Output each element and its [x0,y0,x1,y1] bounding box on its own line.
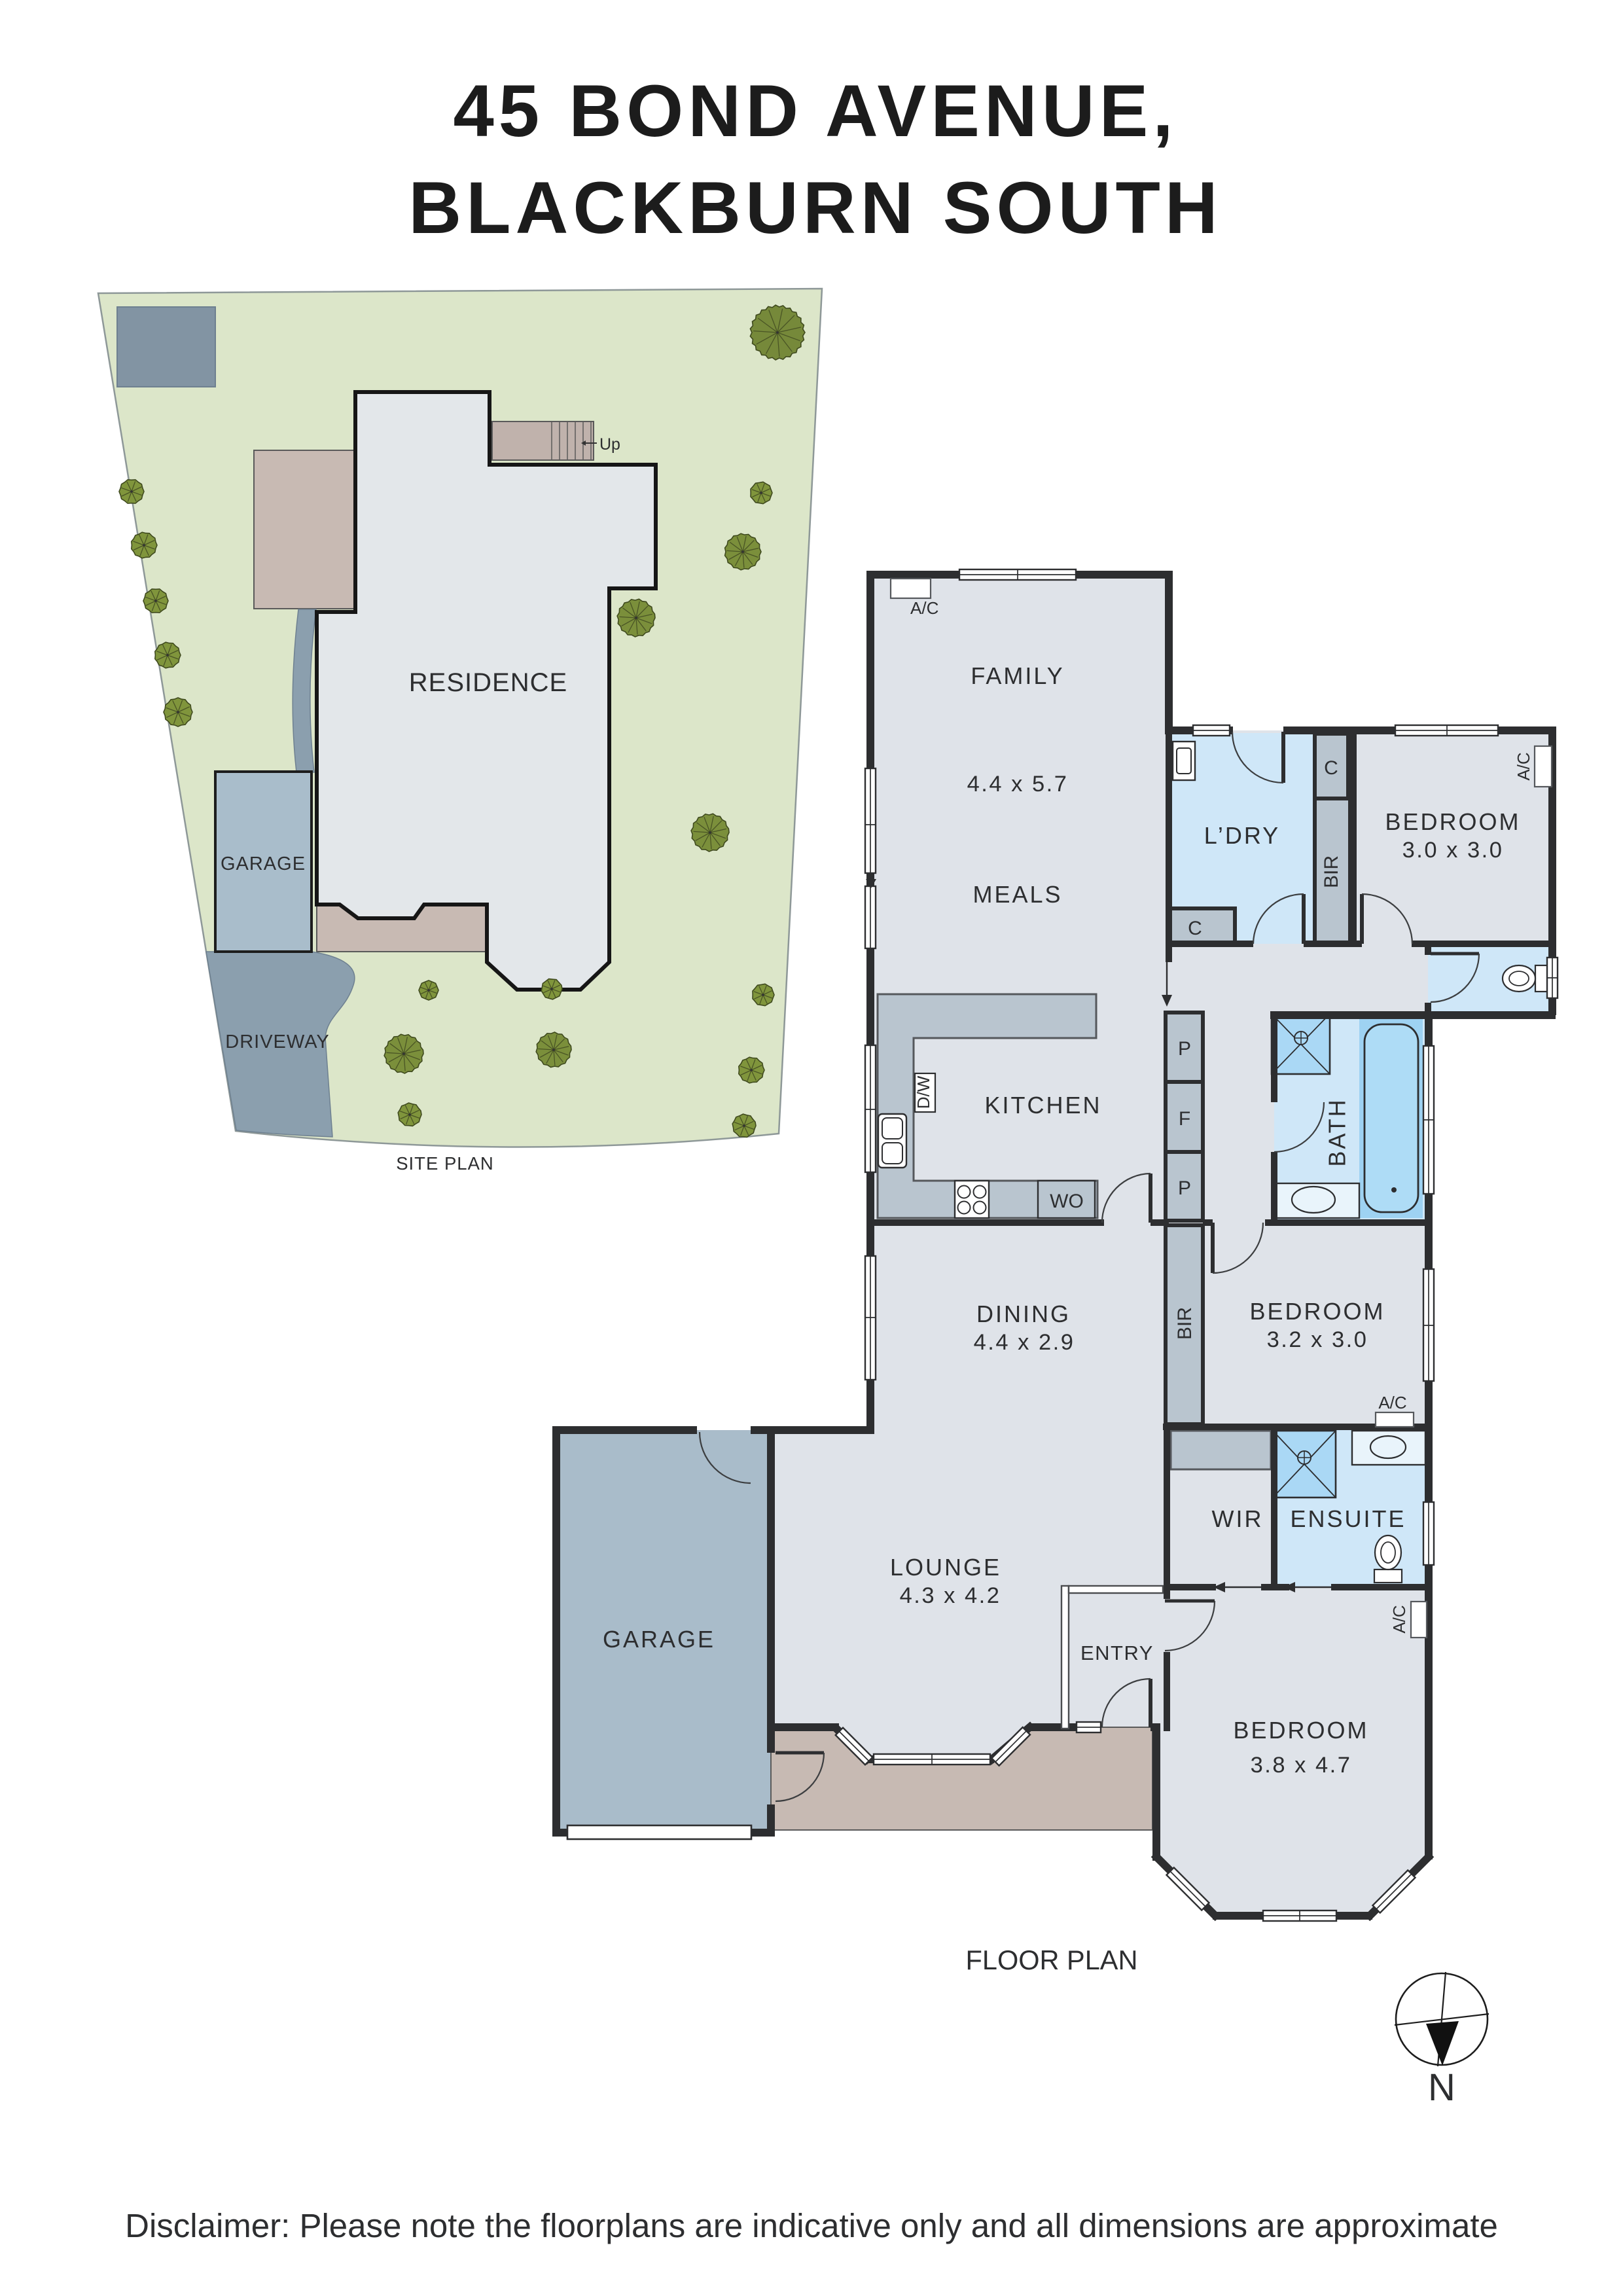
svg-text:MEALS: MEALS [972,881,1062,908]
svg-text:GARAGE: GARAGE [603,1626,715,1653]
svg-text:C: C [1188,918,1202,939]
svg-text:WIR: WIR [1212,1505,1264,1532]
svg-text:WO: WO [1050,1191,1084,1212]
svg-text:SITE PLAN: SITE PLAN [396,1153,494,1174]
svg-text:4.4 x 2.9: 4.4 x 2.9 [974,1330,1075,1355]
svg-text:Disclaimer: Please note the fl: Disclaimer: Please note the floorplans a… [125,2207,1498,2244]
svg-text:45 BOND AVENUE,: 45 BOND AVENUE, [454,70,1178,152]
svg-text:3.2 x 3.0: 3.2 x 3.0 [1267,1327,1368,1352]
svg-text:BIR: BIR [1174,1307,1196,1340]
svg-text:A/C: A/C [1514,752,1533,780]
svg-text:3.0 x 3.0: 3.0 x 3.0 [1402,838,1504,863]
svg-text:BEDROOM: BEDROOM [1385,808,1520,835]
svg-text:LOUNGE: LOUNGE [890,1554,1001,1581]
svg-text:D/W: D/W [914,1075,933,1109]
svg-text:A/C: A/C [1389,1605,1409,1633]
svg-text:DINING: DINING [976,1300,1071,1327]
svg-text:RESIDENCE: RESIDENCE [409,668,567,697]
svg-text:L’DRY: L’DRY [1204,822,1280,849]
svg-text:ENSUITE: ENSUITE [1290,1505,1406,1532]
svg-text:Up: Up [599,435,620,454]
svg-text:FLOOR PLAN: FLOOR PLAN [966,1945,1138,1975]
svg-text:3.8 x 4.7: 3.8 x 4.7 [1251,1753,1352,1778]
svg-text:C: C [1324,757,1338,779]
svg-text:DRIVEWAY: DRIVEWAY [225,1031,329,1052]
svg-text:BATH: BATH [1324,1098,1351,1166]
svg-text:4.4 x 5.7: 4.4 x 5.7 [967,772,1069,797]
svg-text:BEDROOM: BEDROOM [1249,1298,1385,1325]
svg-text:P: P [1178,1038,1191,1060]
svg-text:GARAGE: GARAGE [221,853,306,874]
svg-text:A/C: A/C [910,598,938,618]
svg-text:N: N [1428,2066,1455,2109]
svg-text:F: F [1179,1108,1190,1130]
svg-text:ENTRY: ENTRY [1080,1641,1154,1664]
svg-text:FAMILY: FAMILY [971,662,1064,689]
svg-text:A/C: A/C [1378,1393,1406,1412]
svg-text:P: P [1178,1177,1191,1199]
svg-text:BLACKBURN SOUTH: BLACKBURN SOUTH [408,167,1222,249]
svg-text:BIR: BIR [1321,855,1342,888]
svg-text:4.3 x 4.2: 4.3 x 4.2 [900,1583,1001,1608]
svg-text:KITCHEN: KITCHEN [984,1092,1101,1119]
svg-text:BEDROOM: BEDROOM [1233,1717,1368,1744]
